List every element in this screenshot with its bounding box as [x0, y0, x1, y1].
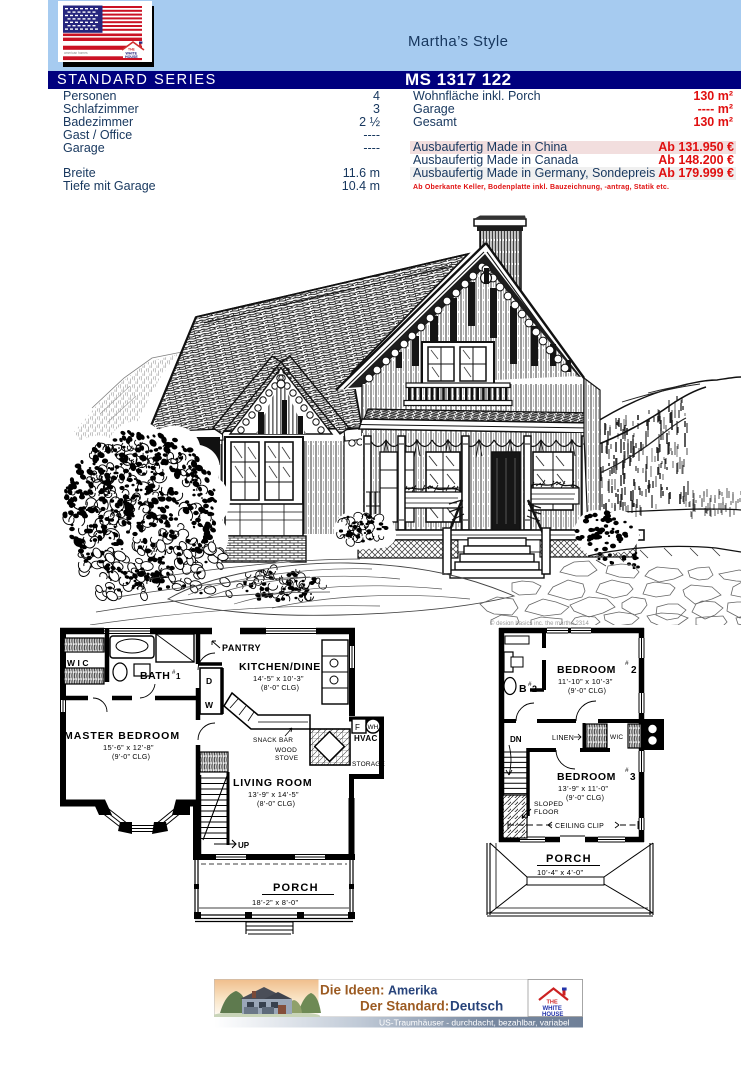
svg-text:18’-2” x 8’-0”: 18’-2” x 8’-0”: [252, 898, 298, 907]
svg-text:Deutsch: Deutsch: [450, 999, 503, 1014]
svg-text:UP: UP: [238, 841, 250, 850]
svg-text:11’-10” x 10’-3”: 11’-10” x 10’-3”: [558, 677, 613, 686]
svg-text:PORCH: PORCH: [546, 853, 592, 865]
svg-text:2: 2: [532, 684, 537, 694]
svg-text:SNACK BAR: SNACK BAR: [253, 737, 293, 744]
svg-text:MASTER BEDROOM: MASTER BEDROOM: [64, 730, 180, 742]
svg-text:D: D: [206, 676, 212, 686]
svg-text:Die Ideen:: Die Ideen:: [320, 983, 385, 998]
svg-text:FLOOR: FLOOR: [534, 809, 559, 816]
svg-text:HVAC: HVAC: [354, 734, 378, 743]
svg-text:STORAGE: STORAGE: [352, 761, 386, 768]
svg-text:BEDROOM: BEDROOM: [557, 771, 616, 783]
svg-text:WHITE: WHITE: [543, 1006, 562, 1012]
svg-text:HOUSE: HOUSE: [125, 55, 138, 59]
svg-text:Der Standard:: Der Standard:: [360, 999, 449, 1014]
svg-text:PORCH: PORCH: [273, 882, 319, 894]
svg-text:LIVING ROOM: LIVING ROOM: [233, 777, 312, 789]
svg-text:2: 2: [631, 665, 637, 676]
svg-text:american homes: american homes: [64, 51, 88, 55]
svg-text:BATH: BATH: [140, 670, 170, 682]
svg-text:CEILING CLIP: CEILING CLIP: [555, 823, 604, 830]
svg-text:PANTRY: PANTRY: [222, 643, 261, 653]
svg-text:WIC: WIC: [67, 658, 91, 668]
svg-text:(9’-0” CLG): (9’-0” CLG): [112, 754, 150, 761]
svg-text:#: #: [625, 660, 629, 667]
svg-text:LINEN: LINEN: [552, 735, 574, 742]
svg-text:14’-5” x 10’-3”: 14’-5” x 10’-3”: [253, 674, 304, 683]
svg-text:13’-9” x 11’-0”: 13’-9” x 11’-0”: [558, 784, 608, 793]
svg-text:10’-4” x 4’-0”: 10’-4” x 4’-0”: [537, 868, 583, 877]
svg-text:Amerika: Amerika: [388, 984, 438, 998]
svg-text:15’-6” x 12’-8”: 15’-6” x 12’-8”: [103, 743, 154, 752]
svg-text:THE: THE: [547, 1000, 558, 1006]
svg-text:WH: WH: [368, 724, 379, 731]
svg-text:B: B: [519, 683, 527, 695]
svg-text:KITCHEN/DINE: KITCHEN/DINE: [239, 661, 321, 673]
svg-text:(9’-0” CLG): (9’-0” CLG): [568, 688, 606, 695]
svg-text:BEDROOM: BEDROOM: [557, 664, 616, 676]
svg-text:13’-9” x 14’-5”: 13’-9” x 14’-5”: [248, 790, 299, 799]
svg-text:#: #: [625, 767, 629, 774]
svg-text:US-Traumhäuser - durchdacht, b: US-Traumhäuser - durchdacht, bezahlbar, …: [379, 1018, 570, 1028]
svg-text:F: F: [355, 723, 360, 732]
svg-text:WOOD: WOOD: [275, 747, 297, 754]
svg-text:SLOPED: SLOPED: [534, 801, 563, 808]
svg-text:(8’-0” CLG): (8’-0” CLG): [261, 685, 299, 692]
svg-text:DN: DN: [510, 735, 522, 744]
svg-text:STOVE: STOVE: [275, 755, 299, 762]
svg-text:(8’-0” CLG): (8’-0” CLG): [257, 801, 295, 808]
svg-text:3: 3: [630, 772, 636, 783]
svg-text:1: 1: [176, 672, 181, 681]
svg-text:WIC: WIC: [610, 734, 623, 741]
svg-text:W: W: [205, 700, 214, 710]
svg-text:(9’-0” CLG): (9’-0” CLG): [566, 795, 604, 802]
